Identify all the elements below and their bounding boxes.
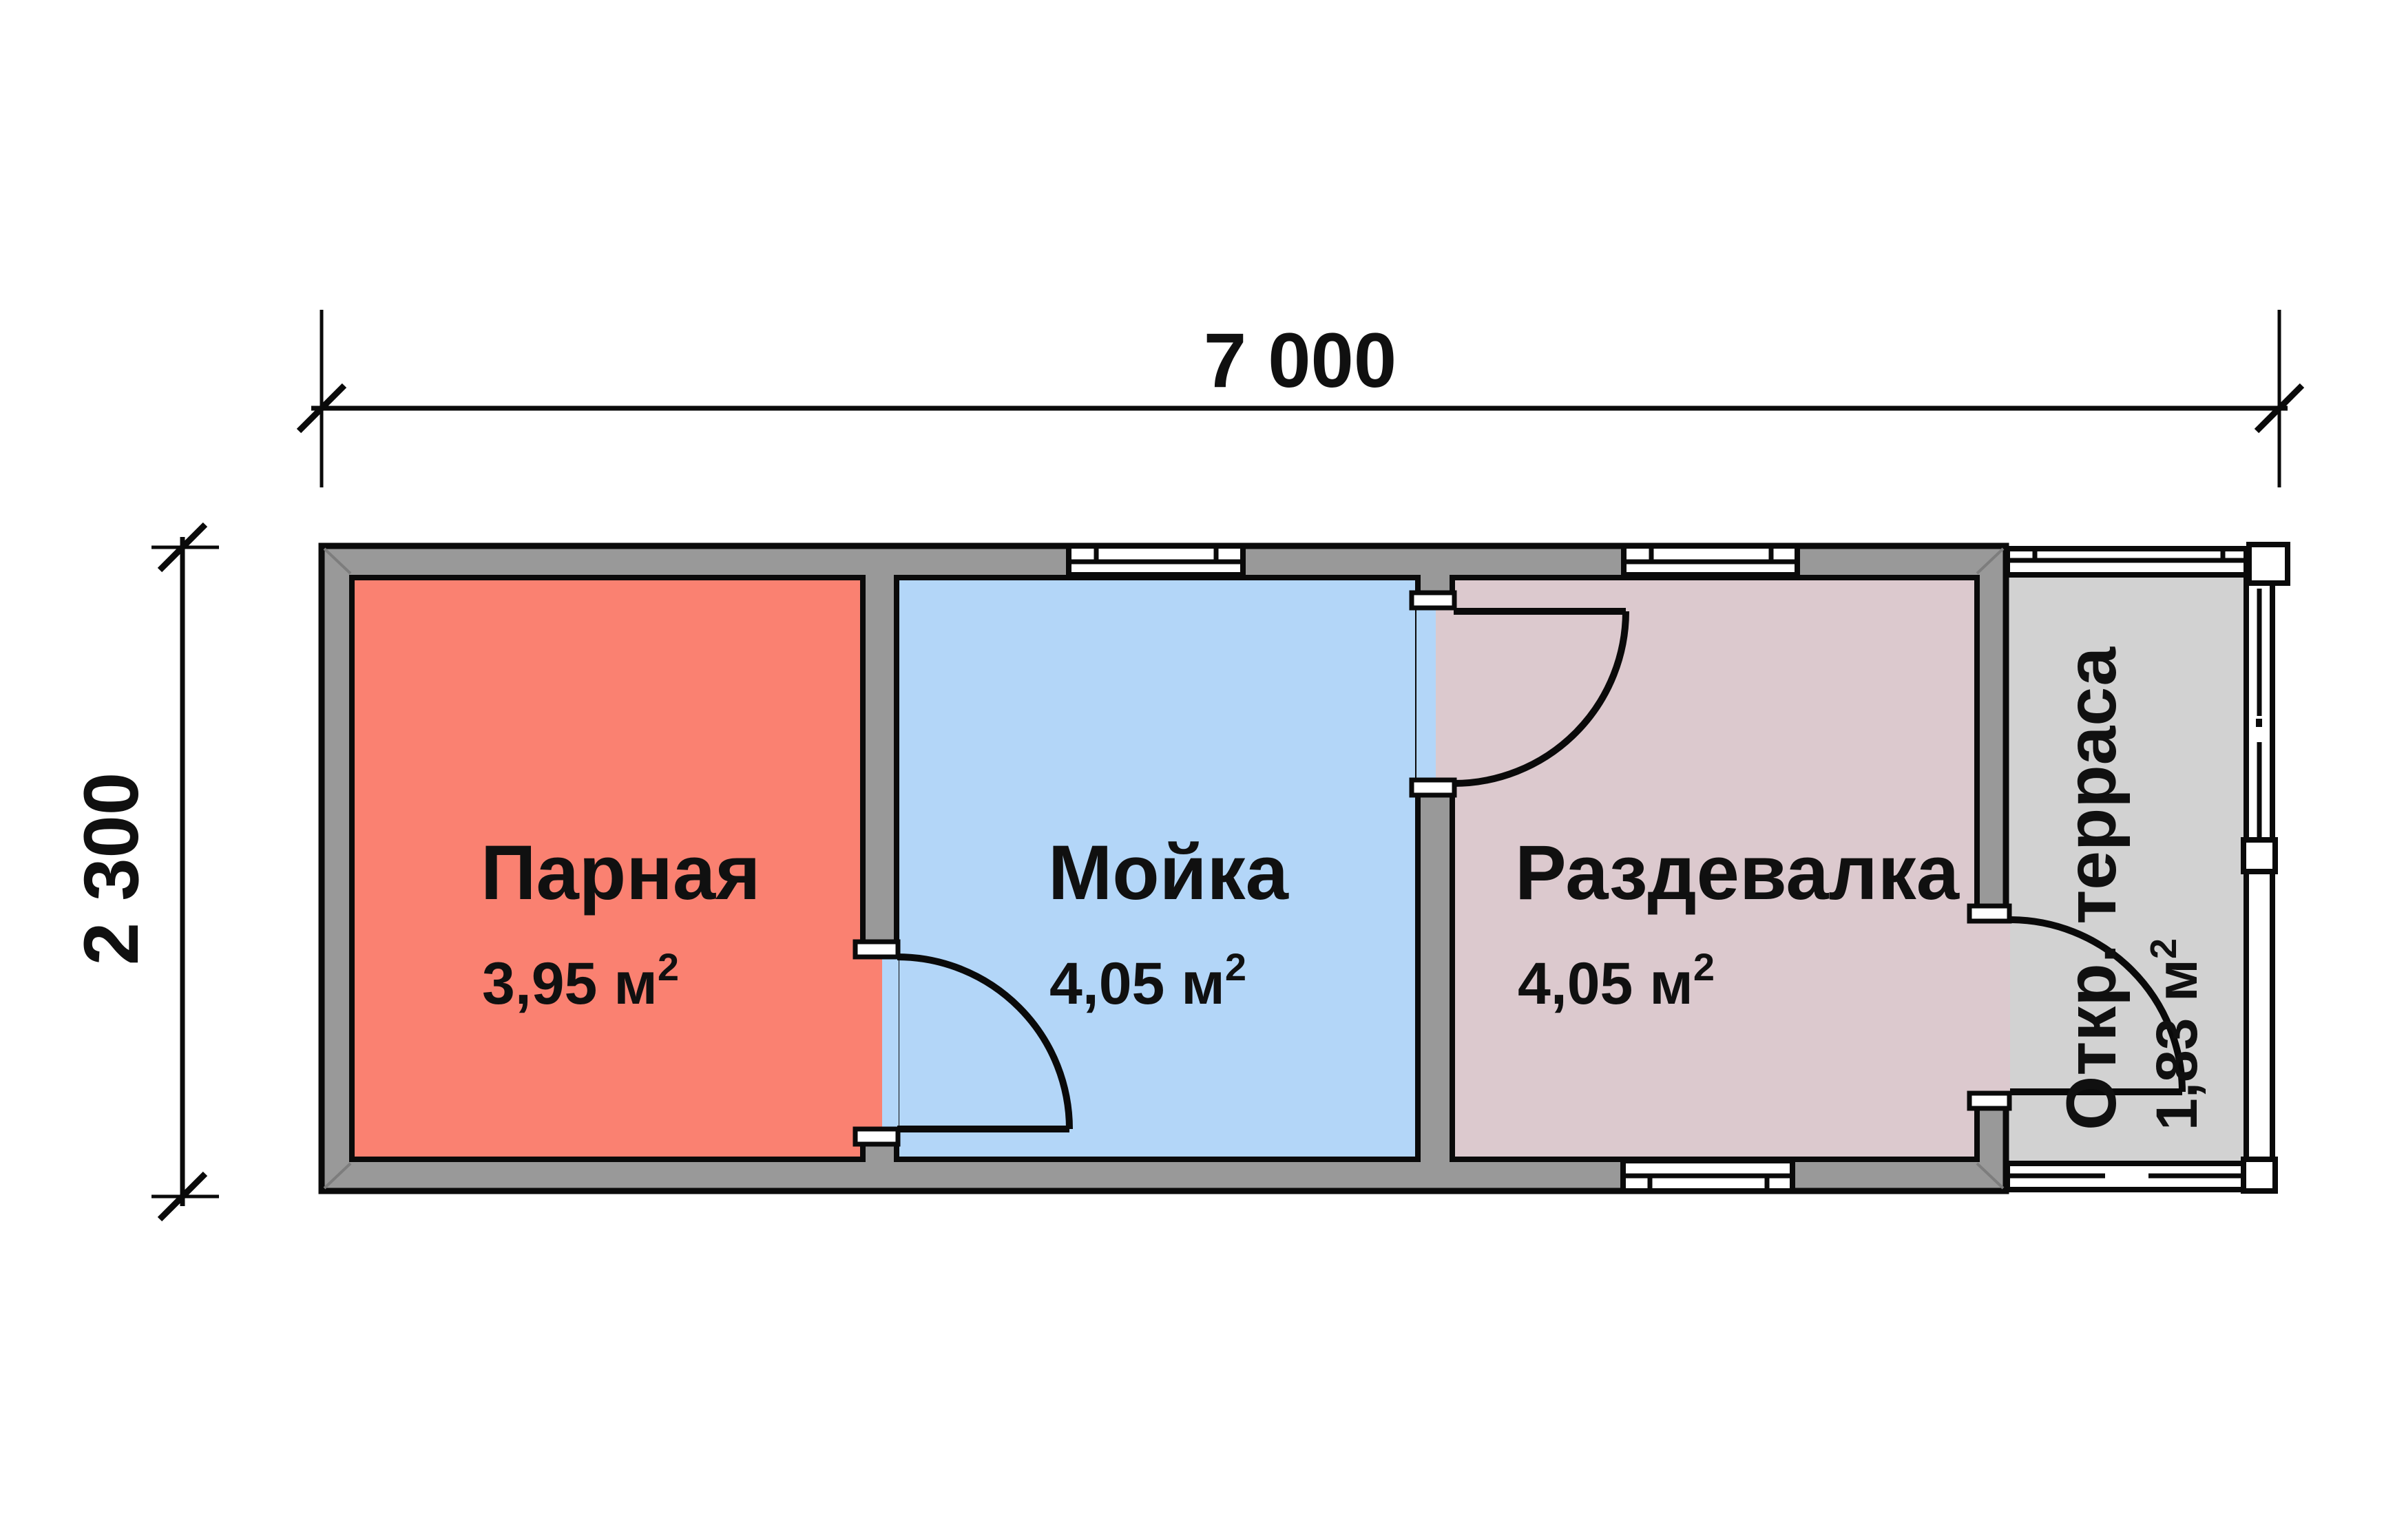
opening-fill-razdevalka-side — [1436, 609, 1455, 781]
room-area-razdevalka-value: 4,05 м — [1518, 951, 1693, 1017]
door-opening-razdevalka-terrace — [1974, 922, 2010, 1092]
opening-fill-moyka-side2 — [1416, 609, 1436, 781]
room-label-parnaya: Парная — [481, 830, 761, 916]
room-area-moyka-sup: 2 — [1225, 945, 1246, 989]
room-area-parnaya-sup: 2 — [658, 945, 679, 989]
window-bottom — [1623, 1161, 1792, 1191]
jamb-door1-bottom — [855, 1129, 898, 1144]
window-top-1 — [1069, 546, 1243, 575]
opening-fill-parnaya-side — [860, 958, 882, 1128]
door-opening-moyka-razdevalka — [1416, 609, 1455, 781]
room-area-terrace-sup: 2 — [2143, 938, 2184, 959]
room-area-terrace-value: 1,83 м — [2144, 959, 2209, 1130]
opening-fill-moyka-side — [882, 958, 899, 1128]
terrace-post-mid-right — [2244, 840, 2275, 872]
room-area-razdevalka-sup: 2 — [1693, 945, 1715, 989]
floor-plan-page: 7 000 2 300 — [0, 0, 2395, 1540]
room-area-moyka: 4,05 м2 — [1049, 945, 1246, 1017]
jamb-door2-bottom — [1412, 780, 1454, 795]
room-area-terrace: 1,83 м2 — [2143, 938, 2209, 1130]
opening-fill-terrace-door — [1974, 922, 2010, 1092]
room-label-moyka: Мойка — [1048, 830, 1289, 916]
dimension-height-label: 2 300 — [68, 772, 154, 965]
room-label-terrace: Откр. терраса — [2052, 646, 2131, 1130]
window-top-2 — [1624, 546, 1797, 575]
jamb-door3-top — [1969, 906, 2009, 921]
room-area-parnaya: 3,95 м2 — [482, 945, 679, 1017]
terrace-post-bottom-right — [2244, 1159, 2275, 1191]
jamb-door2-top — [1412, 593, 1454, 608]
room-area-parnaya-value: 3,95 м — [482, 951, 658, 1017]
door-opening-parnaya-moyka — [860, 958, 899, 1128]
jamb-door3-bottom — [1969, 1093, 2009, 1108]
terrace-rail-right-dot — [2256, 719, 2262, 727]
dimension-width-label: 7 000 — [1204, 317, 1397, 403]
jamb-door1-top — [855, 942, 898, 957]
room-area-moyka-value: 4,05 м — [1049, 951, 1225, 1017]
terrace-post-top-right — [2249, 545, 2288, 583]
room-area-razdevalka: 4,05 м2 — [1518, 945, 1715, 1017]
floor-plan-drawing: 7 000 2 300 — [0, 0, 2395, 1540]
room-label-razdevalka: Раздевалка — [1515, 830, 1960, 916]
